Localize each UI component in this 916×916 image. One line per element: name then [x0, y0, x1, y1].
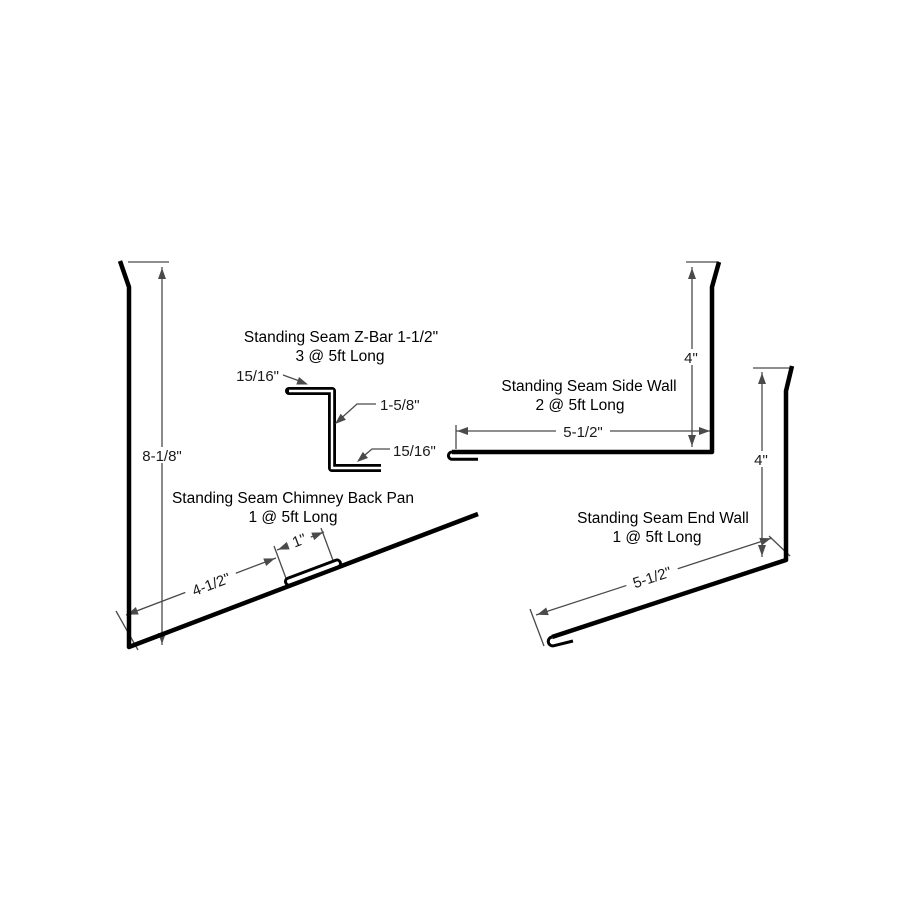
dim-arrow-down-icon: [688, 435, 696, 446]
z-bar-dim-web: 1-5/8": [332, 397, 419, 427]
chimney-quantity: 1 @ 5ft Long: [249, 509, 338, 526]
dim-arrow-up-icon: [688, 268, 696, 279]
chimney-dim-vertical: 8-1/8": [128, 262, 188, 645]
dim-label-4: 4": [754, 452, 768, 469]
dim-label-5-1-2: 5-1/2": [631, 564, 674, 592]
side-wall-title: Standing Seam Side Wall: [501, 378, 676, 395]
side-wall-part: 4" 5-1/2" Standing Seam Side Wall 2 @ 5f…: [448, 262, 719, 459]
dim-arrow-down-icon: [758, 545, 766, 556]
z-bar-dim-top-flange: 15/16": [236, 368, 309, 388]
dim-arrow-left-icon: [536, 607, 549, 618]
end-wall-hem: [548, 637, 573, 646]
dim-arrow-left-icon: [457, 427, 468, 435]
leader-arrow-icon: [296, 377, 309, 388]
dim-arrow-right-icon: [699, 427, 710, 435]
extension-line: [321, 528, 334, 563]
dim-label-15-16-bottom: 15/16": [393, 443, 436, 460]
diagram-canvas: 8-1/8" 4-1/2": [0, 0, 916, 916]
end-wall-quantity: 1 @ 5ft Long: [613, 529, 702, 546]
chimney-title: Standing Seam Chimney Back Pan: [172, 490, 414, 507]
dim-label-15-16-top: 15/16": [236, 368, 279, 385]
drawing-sheet: 8-1/8" 4-1/2": [0, 0, 916, 916]
z-bar-title: Standing Seam Z-Bar 1-1/2": [244, 329, 438, 346]
dim-label-1-5-8: 1-5/8": [380, 397, 420, 414]
dim-arrow-right-icon: [759, 534, 772, 545]
z-bar-part: 15/16" 1-5/8" 15/16" Standing Seam Z-Bar…: [236, 329, 438, 468]
dim-label-5-1-2: 5-1/2": [563, 424, 603, 441]
dim-label-4: 4": [684, 350, 698, 367]
dim-arrow-up-icon: [758, 373, 766, 384]
side-wall-dim-horizontal: 5-1/2": [456, 423, 711, 449]
dim-arrow-up-icon: [158, 268, 166, 279]
dim-arrow-right-icon: [263, 555, 276, 566]
z-bar-dim-bottom-flange: 15/16": [354, 443, 435, 465]
dim-label-8-1-8: 8-1/8": [142, 448, 182, 465]
z-bar-profile-outer: [289, 391, 381, 468]
side-wall-quantity: 2 @ 5ft Long: [536, 397, 625, 414]
end-wall-title: Standing Seam End Wall: [577, 510, 749, 527]
z-bar-quantity: 3 @ 5ft Long: [296, 348, 385, 365]
extension-line: [274, 546, 287, 581]
